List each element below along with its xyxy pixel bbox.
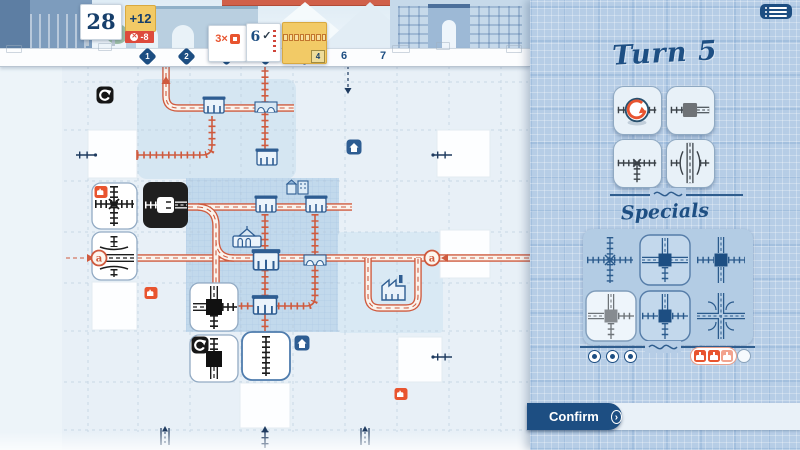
board-bottom-fade <box>0 432 530 450</box>
dice-pool <box>613 86 715 188</box>
empty-stamp-slot <box>737 349 751 363</box>
train-badge-icon <box>145 287 158 299</box>
house-icon <box>347 140 362 155</box>
objective-card-check[interactable]: 6 ✓ <box>246 23 281 62</box>
used-dot <box>624 350 637 363</box>
specials-title: Specials <box>530 196 800 227</box>
die-rail-tee-cross[interactable] <box>613 139 662 188</box>
specials-panel <box>583 229 753 345</box>
special-station-roads-rail[interactable] <box>640 235 690 285</box>
objective-card-multiplier[interactable]: 3× <box>208 25 247 62</box>
hamburger-menu-button[interactable] <box>760 4 792 19</box>
placement-cell[interactable] <box>440 230 490 278</box>
station-building <box>305 196 328 213</box>
tile-black-station[interactable] <box>143 182 188 228</box>
turn-marker-2: 2 <box>177 47 195 65</box>
score-penalty-badge: ✕ -8 <box>125 31 154 43</box>
die-road-overpass[interactable] <box>666 139 715 188</box>
score-value: 28 <box>81 5 121 38</box>
score-bonus-badge: +12 <box>125 5 156 32</box>
special-rail-cross[interactable] <box>587 237 633 283</box>
used-dot <box>606 350 619 363</box>
station-building <box>255 196 278 213</box>
board-canvas: a a <box>0 0 530 450</box>
chevron-right-icon: › <box>611 410 622 424</box>
score-card: 28 <box>80 4 122 40</box>
station-building <box>252 249 281 270</box>
train-badge-icon <box>95 186 108 198</box>
track-squares-icon <box>283 34 326 41</box>
special-station-roads-rails[interactable] <box>697 237 745 283</box>
special-road-cross[interactable] <box>697 293 745 339</box>
train-stamp-meter <box>690 347 737 365</box>
confirm-button[interactable]: Confirm › <box>527 403 622 430</box>
placement-cell[interactable] <box>240 383 290 428</box>
specials-used-dots <box>588 350 637 363</box>
flourish-ornament <box>650 188 686 200</box>
placement-cell[interactable] <box>92 282 137 330</box>
house-icon <box>295 336 310 351</box>
confirm-label: Confirm <box>549 409 599 424</box>
flourish-ornament <box>645 341 681 353</box>
station-building <box>203 97 226 114</box>
station-building <box>252 295 278 314</box>
train-badge-icon <box>395 388 408 400</box>
turn-marker-7: 7 <box>376 50 390 62</box>
check-card-value: 6 <box>251 29 261 45</box>
svg-text:a: a <box>429 254 436 265</box>
multiplier-label: 3× <box>215 33 228 45</box>
rotate-icon[interactable] <box>97 87 114 104</box>
turn-marker-1: 1 <box>138 47 156 65</box>
train-stamp-icon <box>694 350 706 362</box>
die-station-rail-road[interactable] <box>666 86 715 135</box>
turn-marker-6: 6 <box>337 50 351 62</box>
train-stamp-icon <box>708 350 720 362</box>
turn-counter-badge: 4 <box>311 50 325 63</box>
orange-square-icon <box>230 34 240 44</box>
city-houses <box>287 180 308 194</box>
station-building <box>256 149 279 166</box>
check-icon: ✓ <box>262 29 271 42</box>
red-dotted-column <box>273 30 276 52</box>
tile-station-road-rail[interactable] <box>190 283 238 331</box>
x-circle-icon: ✕ <box>130 33 138 41</box>
svg-text:a: a <box>96 254 103 265</box>
placement-cell[interactable] <box>398 337 442 382</box>
tile-rail-straight-selected[interactable] <box>242 332 290 380</box>
rotate-icon[interactable] <box>192 337 209 354</box>
special-station-road-rails[interactable] <box>640 291 690 341</box>
used-dot <box>588 350 601 363</box>
turn-title: Turn 5 <box>529 31 800 76</box>
side-panel: Turn 5 <box>530 0 800 450</box>
game-board-area: a a <box>0 0 530 450</box>
city-buildings-left <box>0 0 92 48</box>
die-rail-straight-reroll[interactable] <box>613 86 662 135</box>
special-station-used[interactable] <box>586 291 636 341</box>
train-stamp-faded-icon <box>721 350 733 362</box>
rail-underpass <box>304 255 326 265</box>
rail-underpass <box>255 102 277 112</box>
penalty-value: -8 <box>140 32 148 42</box>
